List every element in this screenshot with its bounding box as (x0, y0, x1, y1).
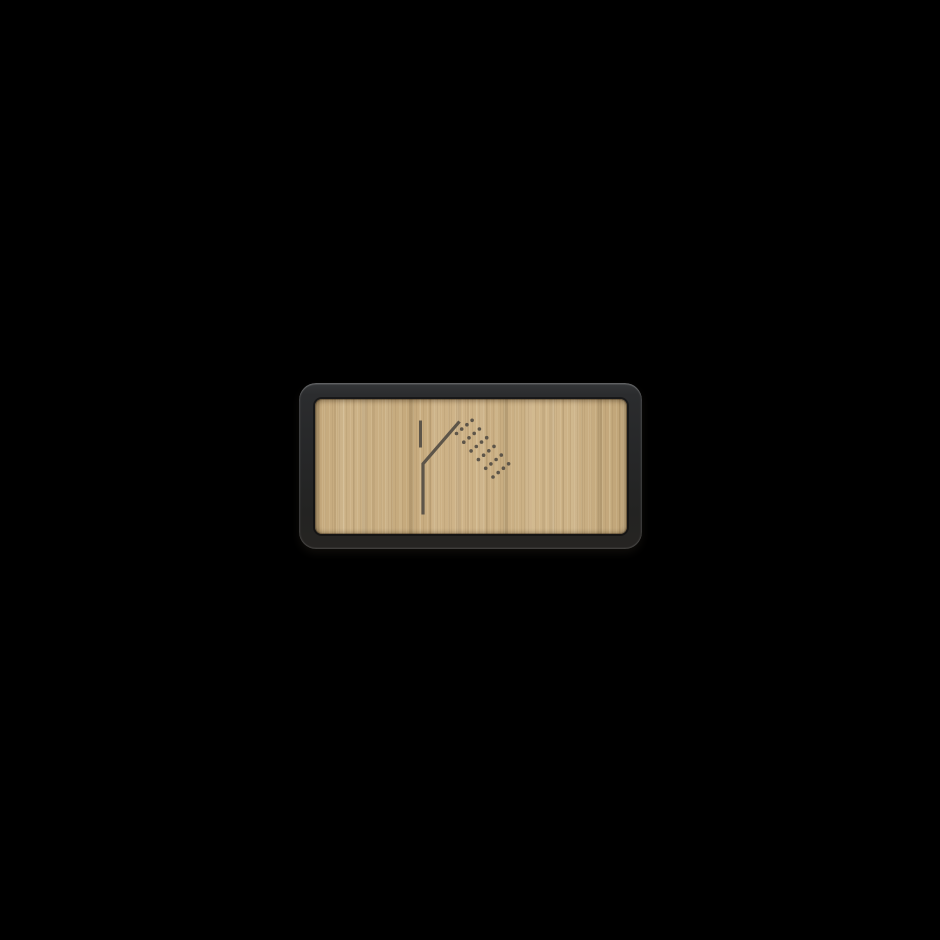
shower-sign-plaque (299, 383, 642, 549)
page-background (0, 0, 940, 940)
wood-panel (315, 399, 627, 534)
